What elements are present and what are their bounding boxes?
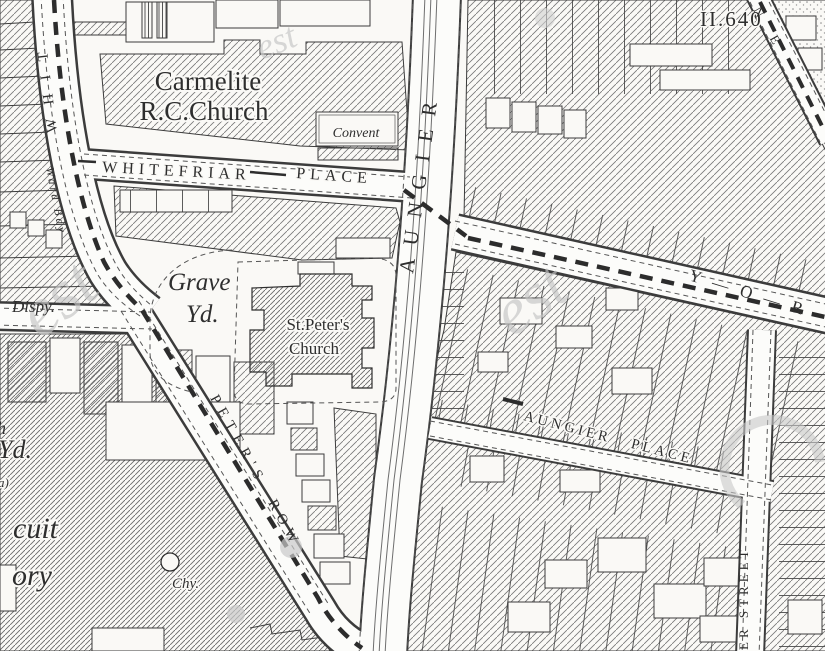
map-canvas: est est est II.640 Carmelite R.C.Church … — [0, 0, 825, 651]
dispensary-label: Dispy. — [11, 297, 55, 316]
factory-label-partial-line2: ory — [12, 559, 53, 592]
graveyard-label-line2: Yd. — [186, 301, 219, 328]
chimney-label: Chy. — [172, 576, 199, 592]
yard-note-partial: a) — [0, 475, 9, 490]
chimney-symbol — [161, 553, 179, 571]
convent-label: Convent — [333, 126, 381, 141]
carmelite-church-label-line2: R.C.Church — [139, 96, 269, 126]
graveyard-label-line1: Grave — [168, 269, 230, 296]
factory-label-partial-line1: cuit — [13, 512, 59, 545]
st-peters-label-line1: St.Peter's — [286, 315, 349, 334]
carmelite-church-label-line1: Carmelite — [155, 66, 261, 96]
right-street-label-partial: ER STREET — [736, 546, 751, 650]
yard-label-partial: Yd. — [0, 435, 32, 464]
st-peters-label-line2: Church — [289, 339, 340, 358]
